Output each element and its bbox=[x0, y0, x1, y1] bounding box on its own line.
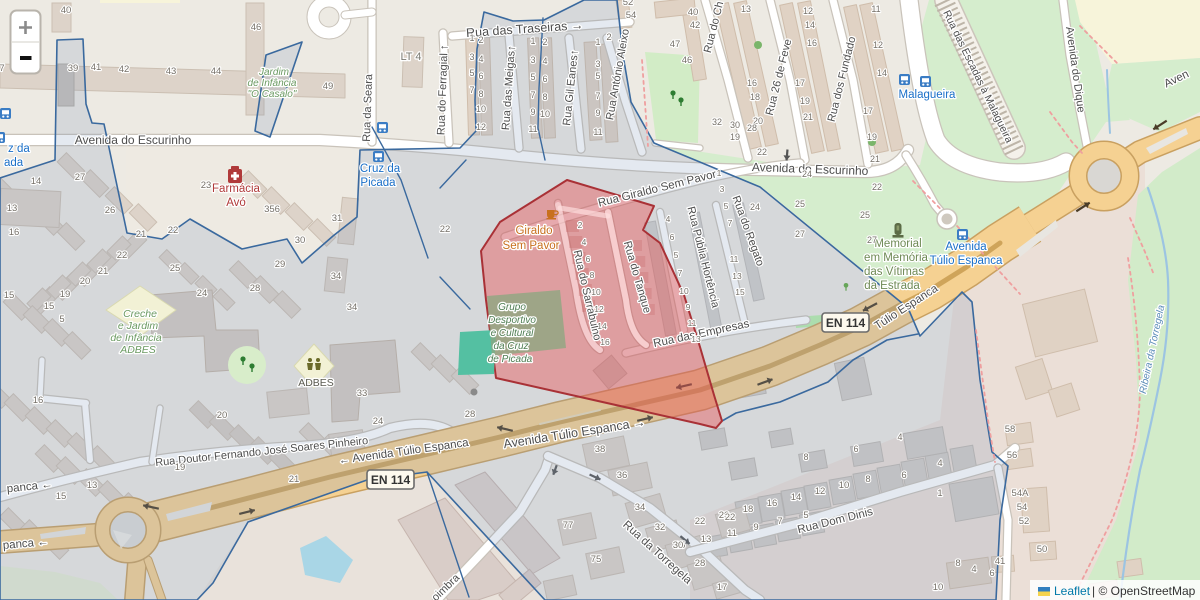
svg-text:14: 14 bbox=[877, 68, 887, 78]
svg-text:Picada: Picada bbox=[360, 177, 396, 189]
svg-text:77: 77 bbox=[563, 520, 574, 531]
svg-text:Avó: Avó bbox=[226, 197, 246, 209]
svg-text:46: 46 bbox=[682, 55, 693, 66]
svg-text:da Cruz: da Cruz bbox=[493, 341, 528, 352]
svg-text:10: 10 bbox=[540, 109, 550, 119]
svg-text:4: 4 bbox=[937, 458, 942, 469]
svg-text:6: 6 bbox=[853, 444, 858, 454]
svg-text:16: 16 bbox=[33, 395, 44, 406]
svg-text:13: 13 bbox=[732, 271, 742, 281]
svg-text:32: 32 bbox=[712, 117, 722, 127]
svg-text:40: 40 bbox=[61, 5, 72, 16]
svg-text:36: 36 bbox=[617, 470, 628, 481]
svg-text:52: 52 bbox=[623, 0, 634, 8]
svg-text:19: 19 bbox=[867, 132, 877, 142]
svg-text:27: 27 bbox=[795, 229, 805, 239]
svg-text:5: 5 bbox=[724, 201, 729, 211]
svg-text:58: 58 bbox=[1005, 424, 1016, 435]
svg-text:ADBES: ADBES bbox=[298, 377, 334, 389]
svg-text:24: 24 bbox=[197, 288, 208, 299]
svg-text:22: 22 bbox=[117, 250, 128, 261]
svg-text:11: 11 bbox=[688, 318, 697, 328]
svg-text:7: 7 bbox=[469, 85, 474, 95]
svg-text:4: 4 bbox=[542, 56, 547, 66]
svg-text:16: 16 bbox=[767, 498, 778, 509]
svg-text:46: 46 bbox=[251, 22, 262, 33]
svg-text:21: 21 bbox=[803, 112, 813, 122]
svg-text:16: 16 bbox=[600, 337, 610, 347]
svg-text:8: 8 bbox=[803, 452, 808, 462]
svg-text:3: 3 bbox=[530, 55, 535, 65]
svg-text:11: 11 bbox=[528, 124, 537, 134]
svg-text:Grupo: Grupo bbox=[498, 302, 526, 313]
svg-text:2: 2 bbox=[542, 37, 547, 47]
svg-text:"O Casalo": "O Casalo" bbox=[248, 89, 297, 100]
svg-text:14: 14 bbox=[597, 321, 607, 331]
svg-text:17: 17 bbox=[717, 582, 728, 593]
svg-text:23: 23 bbox=[201, 180, 212, 191]
svg-text:13: 13 bbox=[87, 480, 98, 491]
svg-text:de Infância: de Infância bbox=[248, 78, 297, 89]
svg-text:42: 42 bbox=[119, 64, 130, 75]
svg-text:28: 28 bbox=[747, 123, 757, 133]
svg-text:de Infância: de Infância bbox=[110, 332, 162, 344]
svg-text:12: 12 bbox=[594, 304, 604, 314]
svg-text:12: 12 bbox=[803, 6, 813, 16]
svg-text:Desportivo: Desportivo bbox=[488, 315, 536, 326]
svg-text:3: 3 bbox=[595, 59, 600, 69]
svg-text:16: 16 bbox=[747, 78, 757, 88]
svg-text:4: 4 bbox=[897, 432, 902, 442]
svg-text:11: 11 bbox=[593, 127, 602, 137]
svg-text:Cruz da: Cruz da bbox=[360, 163, 401, 175]
svg-text:2: 2 bbox=[478, 35, 483, 45]
svg-text:Leaflet: Leaflet bbox=[1054, 584, 1091, 598]
svg-text:34: 34 bbox=[347, 302, 358, 313]
svg-text:6: 6 bbox=[989, 568, 994, 579]
svg-text:1: 1 bbox=[530, 36, 535, 46]
svg-text:1: 1 bbox=[469, 33, 474, 43]
svg-text:356: 356 bbox=[264, 204, 280, 215]
svg-text:47: 47 bbox=[670, 39, 681, 50]
svg-text:27: 27 bbox=[867, 235, 877, 245]
svg-text:3: 3 bbox=[720, 184, 725, 194]
svg-text:12: 12 bbox=[476, 122, 486, 132]
svg-text:22: 22 bbox=[725, 512, 736, 523]
svg-text:27: 27 bbox=[75, 172, 86, 183]
svg-text:10: 10 bbox=[679, 286, 689, 296]
svg-text:Avenida: Avenida bbox=[945, 241, 987, 253]
svg-text:13: 13 bbox=[701, 534, 712, 545]
svg-text:13: 13 bbox=[7, 203, 18, 214]
svg-text:19: 19 bbox=[730, 132, 740, 142]
svg-text:22: 22 bbox=[440, 224, 451, 235]
svg-text:31: 31 bbox=[332, 213, 343, 224]
svg-text:2: 2 bbox=[606, 32, 611, 43]
svg-text:6: 6 bbox=[670, 232, 675, 242]
svg-text:Creche: Creche bbox=[123, 308, 157, 320]
svg-text:34: 34 bbox=[635, 502, 646, 513]
svg-text:32: 32 bbox=[655, 522, 666, 533]
svg-text:8: 8 bbox=[955, 558, 960, 569]
svg-text:7: 7 bbox=[530, 90, 535, 100]
svg-text:30: 30 bbox=[730, 120, 740, 130]
svg-text:17: 17 bbox=[863, 106, 873, 116]
svg-text:52: 52 bbox=[1019, 516, 1030, 527]
svg-text:1: 1 bbox=[595, 37, 600, 47]
svg-text:13: 13 bbox=[691, 334, 701, 344]
svg-text:41: 41 bbox=[91, 62, 102, 73]
svg-text:44: 44 bbox=[211, 66, 222, 77]
svg-text:10: 10 bbox=[591, 287, 601, 297]
svg-text:20: 20 bbox=[217, 410, 228, 421]
svg-text:Memorial: Memorial bbox=[874, 238, 921, 250]
svg-text:25: 25 bbox=[860, 210, 870, 220]
svg-text:18: 18 bbox=[750, 92, 760, 102]
svg-text:54: 54 bbox=[626, 10, 637, 21]
svg-text:18: 18 bbox=[743, 504, 754, 515]
svg-text:5: 5 bbox=[803, 510, 808, 521]
svg-text:4: 4 bbox=[478, 54, 483, 64]
svg-text:1: 1 bbox=[717, 168, 722, 178]
svg-text:17: 17 bbox=[795, 78, 805, 88]
svg-text:28: 28 bbox=[465, 409, 476, 420]
svg-text:15: 15 bbox=[735, 287, 745, 297]
svg-text:22: 22 bbox=[695, 516, 706, 527]
svg-text:10: 10 bbox=[839, 480, 850, 491]
svg-text:8: 8 bbox=[478, 89, 483, 99]
svg-text:19: 19 bbox=[175, 462, 186, 473]
svg-text:5: 5 bbox=[530, 72, 535, 82]
svg-text:24: 24 bbox=[750, 202, 760, 212]
svg-text:22: 22 bbox=[757, 147, 767, 157]
svg-text:13: 13 bbox=[741, 4, 751, 14]
svg-text:9: 9 bbox=[595, 108, 600, 118]
svg-text:6: 6 bbox=[478, 71, 483, 81]
svg-text:14: 14 bbox=[805, 20, 815, 30]
svg-text:16: 16 bbox=[807, 38, 817, 48]
svg-text:24: 24 bbox=[802, 169, 812, 179]
svg-text:7: 7 bbox=[595, 91, 600, 101]
svg-text:29: 29 bbox=[275, 259, 286, 270]
svg-text:11: 11 bbox=[730, 254, 739, 264]
svg-text:33: 33 bbox=[357, 388, 368, 399]
svg-text:da Estrada: da Estrada bbox=[864, 280, 920, 292]
svg-text:15: 15 bbox=[4, 290, 15, 301]
svg-text:22: 22 bbox=[168, 225, 179, 236]
svg-text:7: 7 bbox=[678, 268, 683, 278]
svg-text:7: 7 bbox=[0, 63, 5, 74]
svg-text:5: 5 bbox=[674, 250, 679, 260]
svg-text:26: 26 bbox=[105, 205, 116, 216]
svg-text:8: 8 bbox=[542, 92, 547, 102]
svg-text:39: 39 bbox=[68, 63, 79, 74]
svg-text:Giraldo: Giraldo bbox=[515, 225, 552, 237]
svg-text:16: 16 bbox=[9, 227, 20, 238]
svg-text:Malagueira: Malagueira bbox=[899, 89, 956, 101]
svg-text:54: 54 bbox=[1017, 502, 1028, 513]
svg-text:14: 14 bbox=[31, 176, 42, 187]
svg-text:10: 10 bbox=[476, 104, 486, 114]
svg-text:30: 30 bbox=[295, 235, 306, 246]
svg-text:34: 34 bbox=[331, 271, 342, 282]
svg-text:40: 40 bbox=[688, 7, 699, 18]
svg-text:15: 15 bbox=[56, 491, 67, 502]
svg-text:22: 22 bbox=[872, 182, 882, 192]
svg-text:1: 1 bbox=[937, 488, 942, 499]
svg-text:19: 19 bbox=[60, 289, 71, 300]
svg-text:25: 25 bbox=[170, 263, 181, 274]
svg-text:3: 3 bbox=[469, 52, 474, 62]
svg-text:Túlio Espanca: Túlio Espanca bbox=[930, 255, 1003, 267]
svg-text:30: 30 bbox=[673, 540, 684, 551]
svg-text:21: 21 bbox=[870, 154, 880, 164]
svg-text:21: 21 bbox=[136, 229, 147, 240]
svg-text:49: 49 bbox=[323, 81, 334, 92]
svg-text:7: 7 bbox=[728, 218, 733, 228]
svg-text:12: 12 bbox=[873, 40, 883, 50]
svg-text:5: 5 bbox=[595, 71, 600, 81]
svg-text:e Jardim: e Jardim bbox=[118, 320, 159, 332]
svg-text:das Vítimas: das Vítimas bbox=[864, 266, 924, 278]
svg-text:21: 21 bbox=[98, 266, 109, 277]
svg-text:6: 6 bbox=[542, 74, 547, 84]
svg-text:4: 4 bbox=[666, 214, 671, 224]
svg-text:19: 19 bbox=[800, 96, 810, 106]
svg-text:Jardim: Jardim bbox=[258, 67, 289, 78]
svg-text:24: 24 bbox=[373, 416, 384, 427]
svg-text:54A: 54A bbox=[1012, 488, 1030, 499]
svg-text:28: 28 bbox=[695, 558, 706, 569]
svg-text:9: 9 bbox=[753, 522, 758, 533]
svg-text:EN 114: EN 114 bbox=[371, 473, 411, 487]
svg-text:de Picada: de Picada bbox=[488, 354, 533, 365]
svg-text:z da: z da bbox=[8, 143, 30, 155]
svg-text:14: 14 bbox=[791, 492, 802, 503]
svg-text:43: 43 bbox=[166, 66, 177, 77]
svg-text:7: 7 bbox=[777, 516, 782, 527]
svg-text:20: 20 bbox=[80, 276, 91, 287]
svg-text:Sem Pavor: Sem Pavor bbox=[503, 240, 560, 252]
svg-text:Farmácia: Farmácia bbox=[212, 183, 261, 195]
svg-text:8: 8 bbox=[865, 474, 870, 485]
svg-text:11: 11 bbox=[727, 528, 737, 539]
svg-text:LT 4: LT 4 bbox=[401, 51, 422, 63]
svg-text:28: 28 bbox=[250, 283, 261, 294]
svg-text:| © OpenStreetMap: | © OpenStreetMap bbox=[1092, 584, 1196, 598]
svg-text:5: 5 bbox=[469, 68, 474, 78]
svg-text:ada: ada bbox=[4, 157, 24, 169]
svg-text:75: 75 bbox=[591, 554, 602, 565]
svg-text:ADBES: ADBES bbox=[119, 344, 156, 356]
svg-text:41: 41 bbox=[995, 556, 1006, 567]
svg-text:12: 12 bbox=[815, 486, 826, 497]
svg-text:5: 5 bbox=[59, 314, 64, 325]
svg-text:11: 11 bbox=[871, 4, 880, 14]
svg-text:em Memória: em Memória bbox=[864, 252, 929, 264]
svg-text:25: 25 bbox=[795, 199, 805, 209]
svg-text:56: 56 bbox=[1007, 450, 1018, 461]
svg-text:4: 4 bbox=[582, 237, 587, 247]
svg-text:8: 8 bbox=[590, 270, 595, 280]
svg-text:6: 6 bbox=[901, 470, 906, 481]
svg-text:15: 15 bbox=[44, 301, 55, 312]
svg-text:10: 10 bbox=[933, 582, 944, 593]
svg-text:Rua da Seara: Rua da Seara bbox=[361, 73, 375, 142]
svg-text:50: 50 bbox=[1037, 544, 1048, 555]
svg-text:9: 9 bbox=[530, 107, 535, 117]
svg-text:6: 6 bbox=[586, 254, 591, 264]
svg-text:EN 114: EN 114 bbox=[826, 316, 866, 330]
svg-text:21: 21 bbox=[289, 474, 300, 485]
svg-text:Avenida do Escurinho: Avenida do Escurinho bbox=[75, 133, 192, 147]
svg-text:2: 2 bbox=[578, 220, 583, 230]
svg-text:42: 42 bbox=[690, 20, 701, 31]
svg-text:e Cultural: e Cultural bbox=[491, 328, 535, 339]
svg-text:9: 9 bbox=[686, 302, 691, 312]
svg-text:38: 38 bbox=[595, 444, 606, 455]
svg-text:4: 4 bbox=[971, 564, 976, 575]
